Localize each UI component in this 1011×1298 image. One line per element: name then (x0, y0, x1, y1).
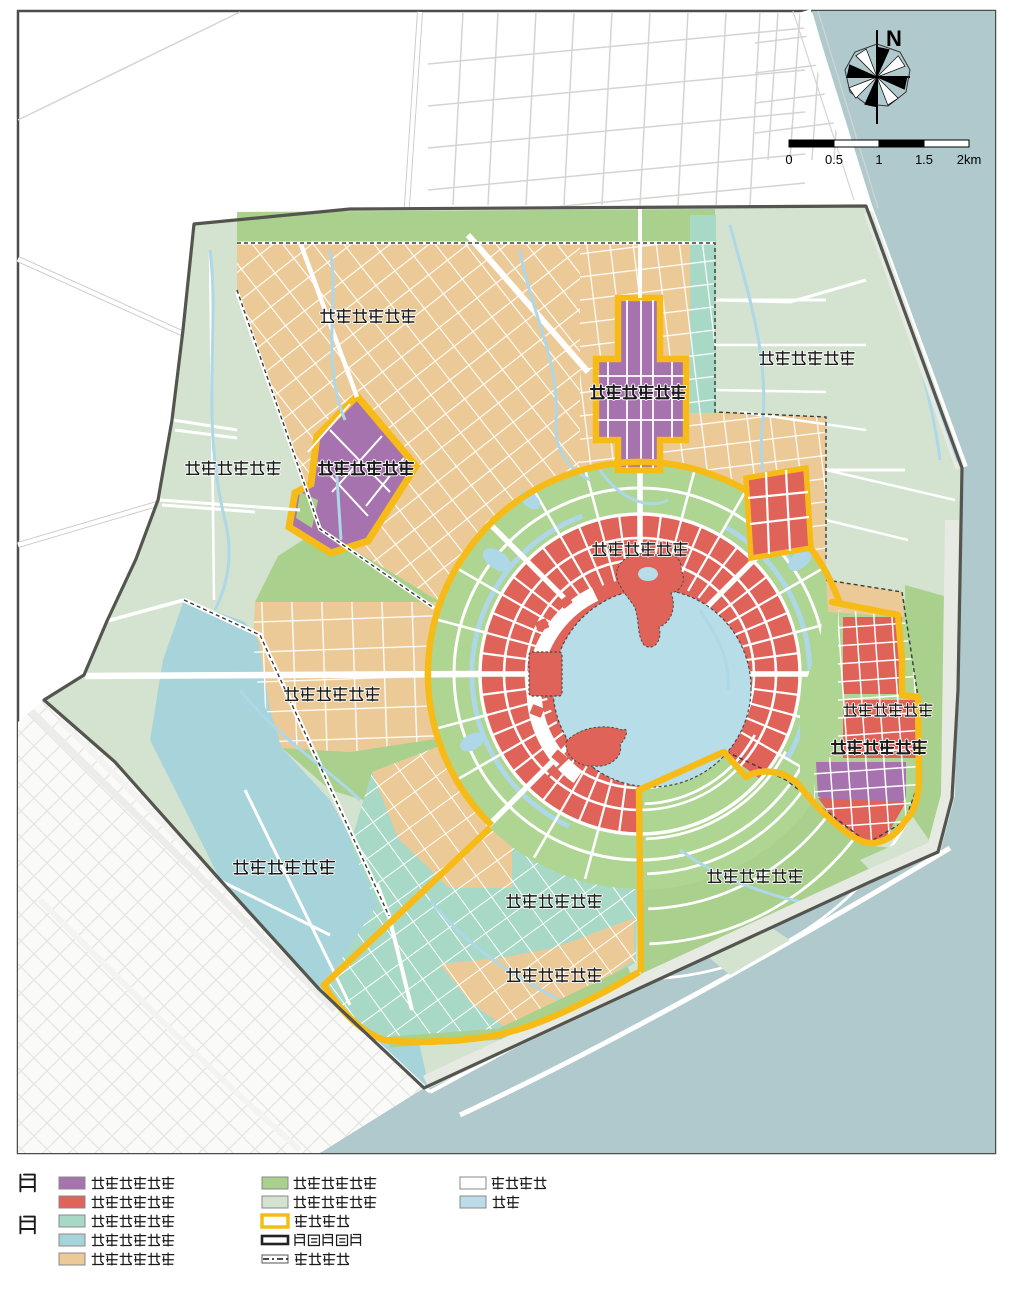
svg-text:0: 0 (785, 152, 792, 167)
svg-text:1.5: 1.5 (915, 152, 933, 167)
svg-text:1: 1 (875, 152, 882, 167)
svg-text:N: N (886, 26, 902, 51)
svg-text:0.5: 0.5 (825, 152, 843, 167)
svg-text:2km: 2km (957, 152, 982, 167)
